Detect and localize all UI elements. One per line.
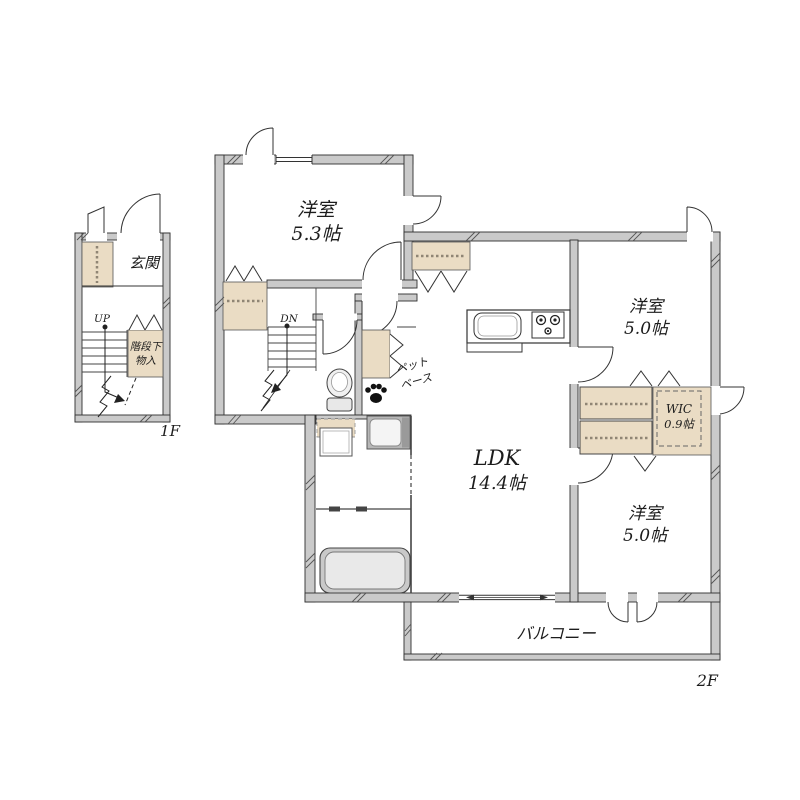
paw-print-icon xyxy=(365,384,387,403)
folding-door-icon xyxy=(129,315,162,330)
floor-plan-page: 玄関 UP 階段下 物入 1F xyxy=(0,0,800,800)
floor-1: 玄関 UP 階段下 物入 1F xyxy=(75,194,181,440)
entrance-label: 玄関 xyxy=(129,254,161,272)
bedroom-nw-door-arc xyxy=(363,242,401,280)
entrance-window-opening xyxy=(86,233,107,241)
stairs-dn-label: DN xyxy=(279,313,298,325)
entrance-door-arc xyxy=(121,194,160,233)
balcony-label: バルコニー xyxy=(516,624,597,643)
shoe-cabinet xyxy=(82,242,113,287)
washbasin-icon xyxy=(320,428,352,456)
hall-closet xyxy=(223,282,267,330)
pet-cabinet xyxy=(362,330,390,378)
bedroom-se-name: 洋室 xyxy=(628,504,665,524)
folding-door-icon xyxy=(415,271,467,292)
ldk-size: 14.4帖 xyxy=(468,473,529,494)
wic-name: WIC xyxy=(666,402,692,416)
folding-door-icon xyxy=(634,456,656,471)
floor2-stairs-arrow xyxy=(261,324,290,411)
under-stairs-label-2: 物入 xyxy=(135,355,156,367)
bathtub-icon xyxy=(320,548,410,593)
floor-2: 洋室 5.3帖 洋室 5.0帖 洋室 5.0帖 LDK 14.4帖 WIC 0.… xyxy=(215,128,744,690)
bedroom-nw-name: 洋室 xyxy=(297,199,338,221)
balcony-door-right-arc xyxy=(637,602,657,622)
kitchen xyxy=(467,310,570,352)
toilet-icon xyxy=(327,369,352,411)
bedroom-se-size: 5.0帖 xyxy=(623,526,670,546)
casement-ne-arc xyxy=(687,207,712,232)
bedroom-ne-size: 5.0帖 xyxy=(624,319,671,339)
casement-nw-arc xyxy=(246,128,273,155)
stairs-up-label: UP xyxy=(94,313,111,325)
balcony-door-left-arc xyxy=(608,602,628,622)
bedroom-nw-size: 5.3帖 xyxy=(291,223,343,245)
entrance-door-opening xyxy=(117,233,160,241)
storage-units xyxy=(223,242,711,471)
folding-door-icon xyxy=(630,371,680,386)
toilet-door-arc xyxy=(323,320,357,354)
kitchen-counter-extension xyxy=(467,343,522,352)
casement-east-arc xyxy=(720,387,744,414)
floor2-label: 2F xyxy=(696,671,719,690)
floor2-stairs xyxy=(268,288,316,371)
floor1-label: 1F xyxy=(160,422,181,440)
casement-nw-right-arc xyxy=(413,196,441,224)
ldk-name: LDK xyxy=(473,446,522,470)
sliding-window-icon xyxy=(459,595,555,601)
bedroom-ne-name: 洋室 xyxy=(629,297,666,317)
floor-plan-canvas: 玄関 UP 階段下 物入 1F xyxy=(0,0,800,800)
folding-door-icon xyxy=(226,266,262,281)
under-stairs-storage xyxy=(128,330,163,377)
bedroom-ne-door-arc xyxy=(578,347,613,382)
under-stairs-label-1: 階段下 xyxy=(130,341,163,353)
wic-size: 0.9帖 xyxy=(664,417,695,431)
casement-window-icon xyxy=(88,207,104,233)
